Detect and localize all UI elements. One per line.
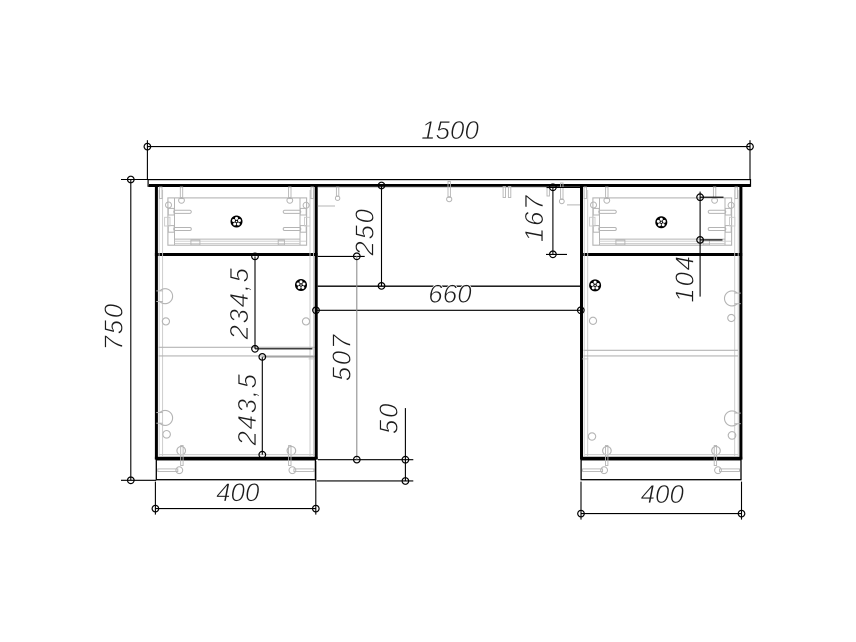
svg-text:243,5: 243,5 [232, 372, 262, 446]
svg-text:167: 167 [519, 194, 549, 242]
svg-text:104: 104 [670, 254, 700, 302]
svg-text:1500: 1500 [421, 115, 479, 145]
svg-text:660: 660 [428, 279, 472, 309]
svg-text:400: 400 [216, 477, 260, 507]
svg-text:250: 250 [350, 207, 380, 256]
svg-text:750: 750 [98, 302, 128, 350]
svg-text:234,5: 234,5 [224, 266, 254, 340]
svg-text:50: 50 [374, 402, 404, 434]
svg-text:507: 507 [327, 333, 357, 381]
svg-text:400: 400 [641, 479, 685, 509]
